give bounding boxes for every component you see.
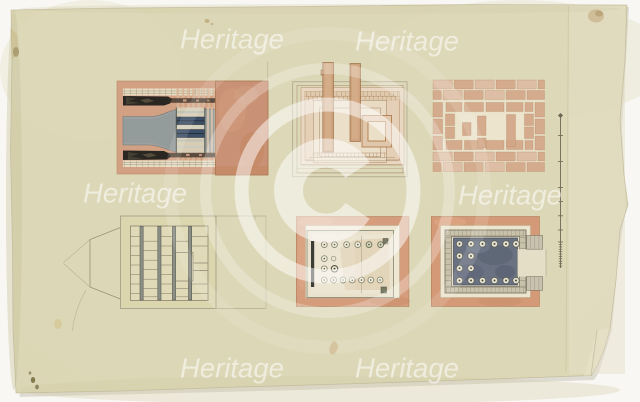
svg-text:Heritage: Heritage xyxy=(355,353,459,384)
svg-text:Heritage: Heritage xyxy=(83,178,187,209)
svg-text:Heritage: Heritage xyxy=(458,180,562,211)
svg-text:Heritage: Heritage xyxy=(355,26,459,57)
svg-text:Heritage: Heritage xyxy=(180,353,284,384)
svg-text:Heritage: Heritage xyxy=(180,24,284,55)
